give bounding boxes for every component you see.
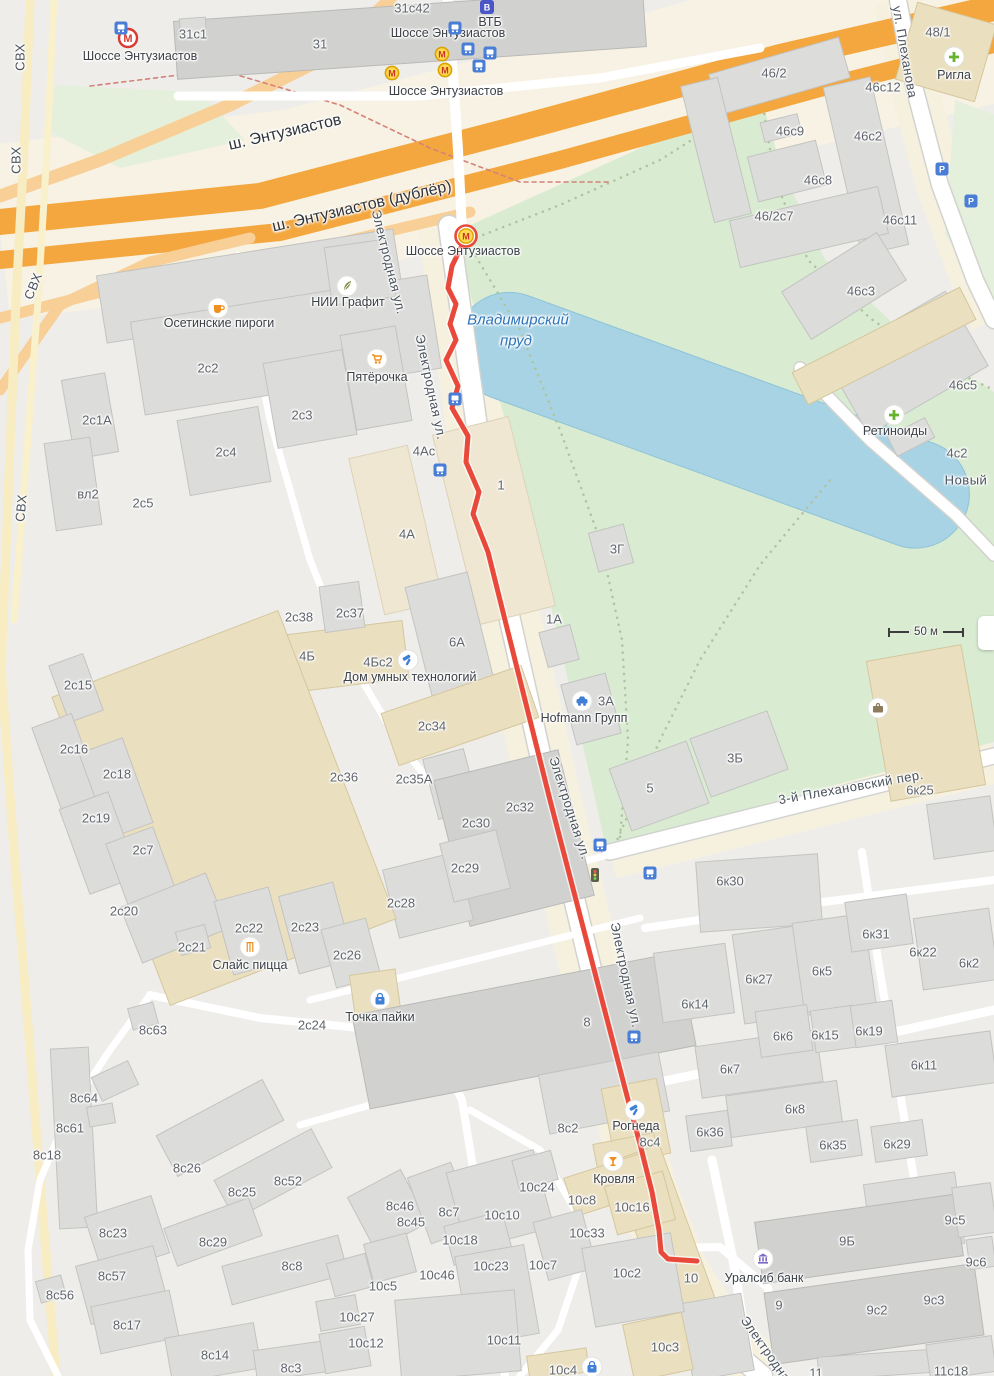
bus-icon[interactable]	[115, 22, 128, 35]
map-icons-layer: МММММВРР	[0, 0, 994, 1376]
bus-icon[interactable]	[449, 393, 462, 406]
scale-bar: 50 м	[888, 626, 964, 638]
bus-icon[interactable]	[484, 47, 497, 60]
parking-icon[interactable]: Р	[965, 195, 978, 208]
drink-icon[interactable]	[602, 1150, 624, 1172]
tools-icon[interactable]	[397, 649, 419, 671]
scale-label: 50 м	[909, 626, 943, 638]
bus-icon[interactable]	[628, 1031, 641, 1044]
bus-icon[interactable]	[449, 22, 462, 35]
mcc-icon[interactable]: М	[384, 65, 400, 81]
vtb-icon[interactable]: В	[480, 0, 494, 14]
svg-text:М: М	[388, 69, 396, 79]
svg-text:М: М	[462, 232, 470, 242]
svg-text:Р: Р	[939, 165, 945, 175]
svg-text:В: В	[484, 3, 491, 13]
mcc-icon[interactable]: М	[437, 62, 453, 78]
scale-line	[943, 631, 962, 633]
bus-icon[interactable]	[473, 60, 486, 73]
scale-line	[890, 631, 909, 633]
parking-icon[interactable]: Р	[936, 163, 949, 176]
map-view[interactable]: ш. Энтузиастовш. Энтузиастов (дублёр)СВХ…	[0, 0, 994, 1376]
food-icon[interactable]	[239, 936, 261, 958]
map-control-button[interactable]	[978, 616, 994, 650]
bag-icon[interactable]	[581, 1356, 603, 1376]
cafe-icon[interactable]	[207, 297, 229, 319]
car-icon[interactable]	[571, 690, 593, 712]
bag-icon[interactable]	[369, 988, 391, 1010]
bus-icon[interactable]	[434, 464, 447, 477]
bus-icon[interactable]	[462, 43, 475, 56]
bus-icon[interactable]	[644, 867, 657, 880]
svg-text:М: М	[123, 33, 132, 45]
scale-tick-right	[962, 628, 964, 637]
svg-text:М: М	[438, 50, 446, 60]
svg-text:М: М	[441, 66, 449, 76]
leaf-icon[interactable]	[336, 275, 358, 297]
pharm-icon[interactable]	[883, 404, 905, 426]
cart-icon[interactable]	[366, 348, 388, 370]
pharm-icon[interactable]	[943, 46, 965, 68]
tools-icon[interactable]	[624, 1099, 646, 1121]
mcc-icon[interactable]: М	[434, 46, 450, 62]
svg-text:Р: Р	[968, 197, 974, 207]
bank-icon[interactable]	[752, 1248, 774, 1270]
bus-icon[interactable]	[594, 839, 607, 852]
mccStart-icon[interactable]: М	[454, 224, 478, 248]
work-icon[interactable]	[867, 697, 889, 719]
traffic-icon[interactable]	[591, 868, 599, 882]
